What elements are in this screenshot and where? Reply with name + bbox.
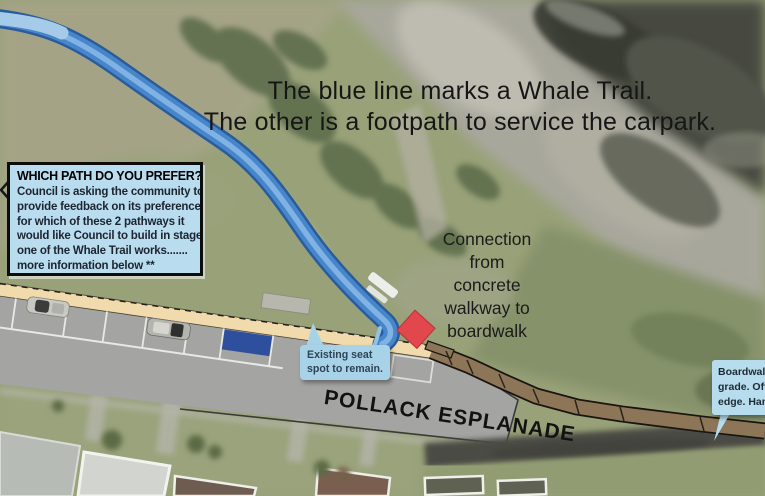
heading-line-2: The other is a footpath to service the c…	[160, 107, 760, 138]
info-box-line: provide feedback on its preference	[17, 200, 193, 215]
seat-callout-line: Existing seat	[307, 349, 383, 363]
info-box-line: Council is asking the community to	[17, 185, 193, 200]
map-heading: The blue line marks a Whale Trail. The o…	[160, 76, 760, 138]
info-box-title: WHICH PATH DO YOU PREFER?	[17, 169, 193, 183]
seat-callout-line: spot to remain.	[307, 363, 383, 377]
connection-line: from	[422, 251, 552, 274]
consultation-map: The blue line marks a Whale Trail. The o…	[0, 0, 765, 496]
connection-label: Connection from concrete walkway to boar…	[422, 228, 552, 343]
info-box-line: one of the Whale Trail works.......	[17, 244, 193, 259]
boardwalk-callout-line: Boardwalk	[718, 365, 765, 380]
boardwalk-callout-line: grade. Off	[718, 380, 765, 395]
connection-line: walkway to	[422, 297, 552, 320]
existing-seat-callout: Existing seat spot to remain.	[300, 345, 390, 380]
heading-line-1: The blue line marks a Whale Trail.	[160, 76, 760, 107]
connection-line: concrete	[422, 274, 552, 297]
boardwalk-callout: Boardwalk grade. Off edge. Han	[712, 360, 765, 415]
info-box-line: would like Council to build in stage	[17, 229, 193, 244]
boardwalk-callout-line: edge. Han	[718, 395, 765, 410]
connection-line: Connection	[422, 228, 552, 251]
info-box-line: more information below **	[17, 259, 193, 274]
connection-line: boardwalk	[422, 320, 552, 343]
info-box-line: for which of these 2 pathways it	[17, 215, 193, 230]
which-path-info-box: WHICH PATH DO YOU PREFER? Council is ask…	[7, 162, 203, 276]
